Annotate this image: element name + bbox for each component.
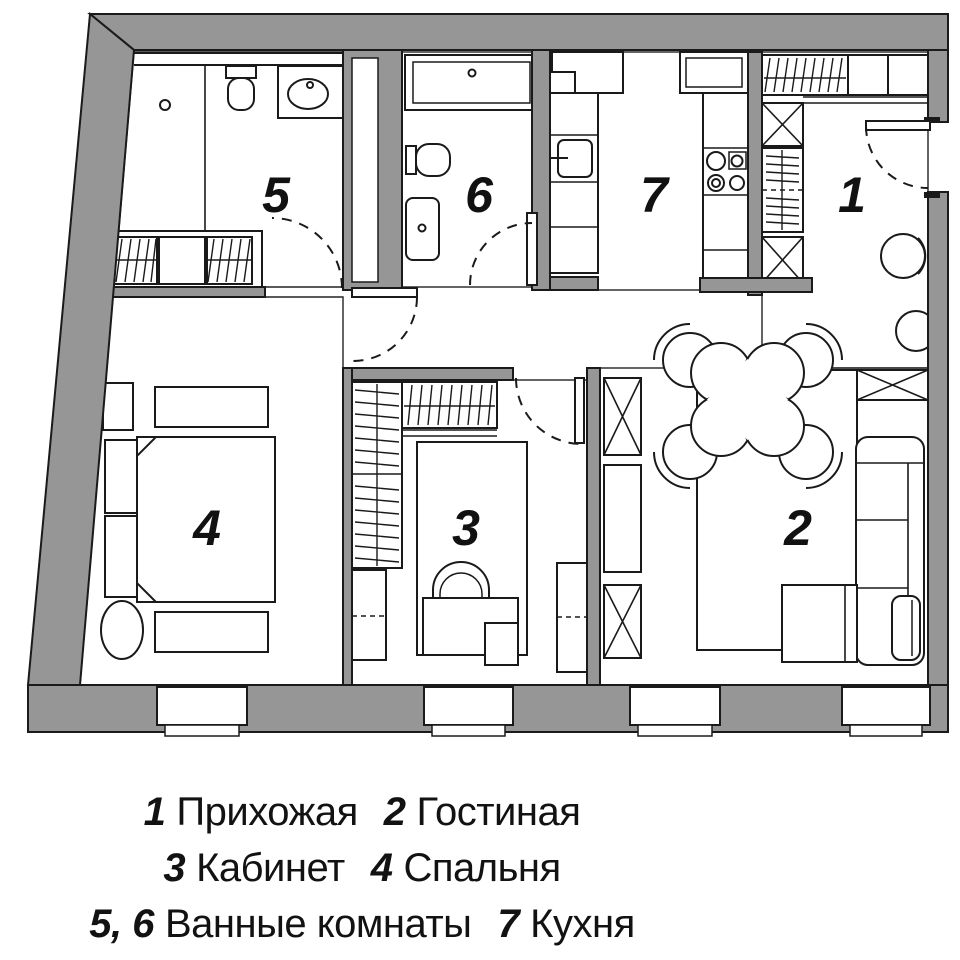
- room-label-6: 6: [465, 167, 494, 223]
- window-sill: [850, 725, 922, 736]
- wall: [700, 278, 812, 292]
- drain-icon: [419, 225, 426, 232]
- desk-return: [485, 623, 518, 665]
- door-jamb: [924, 192, 940, 198]
- nightstand: [103, 383, 133, 430]
- ottoman: [101, 601, 143, 659]
- burner-icon: [707, 152, 725, 170]
- fridge-inner: [686, 58, 742, 87]
- room-5-bathroom: [108, 53, 343, 289]
- room-4-bedroom: [101, 383, 275, 659]
- wardrobe-front-line: [402, 430, 497, 436]
- closet-shelf: [888, 55, 930, 95]
- toilet: [416, 144, 450, 176]
- room-6-bathroom: [405, 55, 538, 260]
- kitchen-counter-step: [552, 52, 623, 93]
- door-leaf: [352, 288, 417, 297]
- door-arc-room4: [353, 297, 417, 361]
- legend-line-2: 3Кабинет4Спальня: [30, 840, 694, 896]
- drain-icon: [469, 70, 476, 77]
- legend-line-3: 5, 6Ванные комнаты7Кухня: [30, 896, 694, 952]
- storage-column: [604, 378, 641, 658]
- wall-top: [90, 14, 948, 50]
- legend-label: Кухня: [530, 902, 635, 946]
- storage-box: [604, 465, 641, 572]
- window-sill: [165, 725, 239, 736]
- furniture-layer: [101, 52, 936, 672]
- pouf: [881, 234, 925, 278]
- wall-right: [928, 50, 948, 122]
- floor-plan-page: 5 6 7 1 4 3 2 1Прихожая2Гостиная 3Кабине…: [0, 0, 960, 960]
- legend-number: 4: [371, 846, 393, 890]
- room-2-living: [654, 324, 928, 665]
- door-leaf: [575, 378, 584, 443]
- legend-number: 3: [163, 846, 185, 890]
- door-arc-room3: [516, 378, 582, 444]
- wall-right: [928, 192, 948, 732]
- wall: [550, 277, 598, 290]
- legend-label: Кабинет: [196, 846, 345, 890]
- room-label-5: 5: [262, 167, 291, 223]
- shower-head-icon: [160, 100, 170, 110]
- legend-number: 5, 6: [89, 902, 154, 946]
- bench: [155, 612, 268, 652]
- legend: 1Прихожая2Гостиная 3Кабинет4Спальня 5, 6…: [30, 784, 694, 952]
- room-label-3: 3: [452, 500, 480, 556]
- legend-line-1: 1Прихожая2Гостиная: [30, 784, 694, 840]
- closet-shelf: [848, 55, 888, 95]
- legend-label: Прихожая: [176, 790, 357, 834]
- duct-shaft: [352, 58, 378, 282]
- door-arc-room6: [470, 223, 532, 285]
- kitchen-counter-left: [550, 93, 598, 273]
- legend-label: Ванные комнаты: [165, 902, 471, 946]
- toilet-tank: [226, 66, 256, 78]
- wall: [587, 368, 600, 685]
- door-arc-room5: [272, 218, 342, 288]
- room-label-4: 4: [192, 500, 221, 556]
- burner-icon: [730, 176, 744, 190]
- closet-front-line: [803, 97, 930, 103]
- window: [157, 687, 247, 725]
- faucet-icon: [307, 82, 313, 88]
- cabinet: [352, 570, 386, 660]
- wall: [343, 368, 352, 685]
- legend-number: 7: [497, 902, 519, 946]
- room-label-2: 2: [783, 500, 812, 556]
- wardrobe-section: [159, 237, 205, 284]
- room-label-7: 7: [640, 167, 670, 223]
- door-leaf: [866, 121, 930, 130]
- burner-icon: [732, 156, 743, 167]
- toilet: [228, 78, 254, 110]
- burner-icon: [712, 179, 720, 187]
- wall: [748, 52, 762, 295]
- window: [630, 687, 720, 725]
- window-sill: [432, 725, 505, 736]
- dresser: [155, 387, 268, 427]
- legend-label: Гостиная: [416, 790, 580, 834]
- sofa-armrest: [892, 596, 920, 660]
- window-sill: [638, 725, 712, 736]
- window: [842, 687, 930, 725]
- legend-number: 1: [144, 790, 166, 834]
- legend-number: 2: [384, 790, 406, 834]
- sofa: [856, 437, 924, 665]
- door-arc-entrance: [866, 126, 928, 188]
- window: [424, 687, 513, 725]
- toilet-tank: [406, 146, 416, 174]
- wall: [343, 368, 513, 380]
- room-7-kitchen: [550, 52, 748, 278]
- nightstand: [105, 440, 137, 513]
- nightstand: [105, 516, 137, 597]
- room-label-1: 1: [838, 167, 866, 223]
- legend-label: Спальня: [403, 846, 560, 890]
- bathtub-inner: [413, 62, 530, 103]
